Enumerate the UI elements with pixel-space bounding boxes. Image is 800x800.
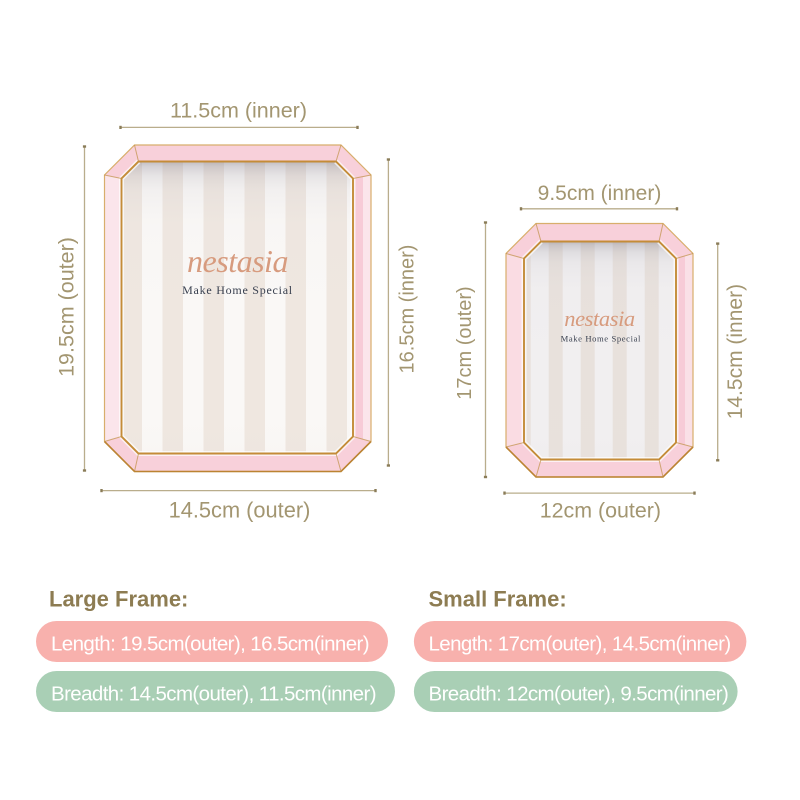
svg-text:Length: 17cm(outer), 14.5cm(in: Length: 17cm(outer), 14.5cm(inner) [429, 633, 731, 656]
svg-text:Length: 19.5cm(outer), 16.5cm(: Length: 19.5cm(outer), 16.5cm(inner) [51, 633, 369, 656]
svg-text:Small Frame:: Small Frame: [429, 587, 567, 612]
svg-text:nestasia: nestasia [564, 306, 635, 331]
svg-text:17cm (outer): 17cm (outer) [454, 286, 476, 399]
svg-text:Large Frame:: Large Frame: [49, 587, 188, 612]
svg-text:19.5cm (outer): 19.5cm (outer) [55, 237, 79, 377]
svg-text:nestasia: nestasia [187, 243, 288, 279]
svg-text:9.5cm (inner): 9.5cm (inner) [538, 182, 662, 205]
svg-text:12cm (outer): 12cm (outer) [540, 499, 661, 523]
svg-text:11.5cm (inner): 11.5cm (inner) [170, 99, 307, 123]
svg-text:14.5cm (inner): 14.5cm (inner) [724, 284, 747, 419]
svg-text:Breadth: 14.5cm(outer), 11.5cm: Breadth: 14.5cm(outer), 11.5cm(inner) [51, 683, 376, 706]
svg-text:Make Home Special: Make Home Special [561, 333, 641, 343]
svg-text:Breadth: 12cm(outer), 9.5cm(in: Breadth: 12cm(outer), 9.5cm(inner) [429, 683, 729, 706]
svg-text:14.5cm (outer): 14.5cm (outer) [169, 497, 311, 522]
svg-text:Make Home Special: Make Home Special [182, 283, 293, 297]
svg-text:16.5cm (inner): 16.5cm (inner) [397, 245, 419, 374]
